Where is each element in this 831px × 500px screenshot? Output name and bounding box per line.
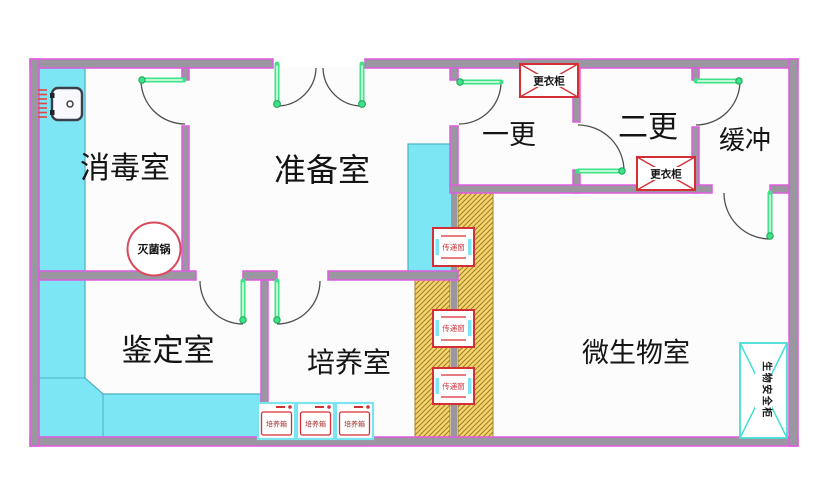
transfer-window-3: 传递窗 [433, 368, 474, 404]
room-label-first-change: 一更 [482, 120, 536, 151]
door-hinge [274, 317, 280, 323]
locker-2: 更衣柜 [637, 157, 695, 190]
room-label-preparation: 准备室 [274, 151, 370, 189]
transfer-window-label: 传递窗 [442, 242, 465, 252]
wall-segment [450, 68, 458, 80]
transfer-window-1: 传递窗 [433, 228, 474, 266]
incubator-3: 培养箱 [336, 403, 373, 439]
wall-segment [30, 59, 39, 446]
locker-label: 更衣柜 [650, 168, 682, 181]
door-hinge [359, 101, 366, 108]
room-label-identification: 鉴定室 [122, 333, 215, 369]
room-label-culture: 培养室 [307, 346, 391, 379]
door-hinge [767, 233, 773, 239]
transfer-window-label: 传递窗 [442, 323, 465, 333]
wall-segment [450, 126, 458, 186]
wall-segment [243, 271, 277, 280]
wall-segment [365, 59, 798, 68]
transfer-window-2: 传递窗 [433, 310, 474, 347]
door-hinge [736, 78, 742, 84]
door-hinge [619, 168, 625, 174]
incubator-2: 培养箱 [297, 403, 334, 439]
wall-segment [328, 271, 458, 280]
wall-segment [30, 59, 273, 68]
incubator-label: 培养箱 [344, 420, 365, 429]
door-hinge [240, 317, 246, 323]
room-label-buffer: 缓冲 [719, 126, 771, 156]
wall-segment [39, 271, 196, 280]
biosafety-cabinet: 生物安全柜 [740, 343, 787, 438]
locker-1: 更衣柜 [520, 64, 578, 97]
transfer-window-label: 传递窗 [442, 381, 465, 391]
wall-segment [770, 185, 789, 193]
lab-floor-plan: 灭菌锅 更衣柜 更衣柜 传递窗 传递窗 传递窗 [0, 0, 831, 500]
incubator-label: 培养箱 [266, 420, 287, 429]
room-label-microbiology: 微生物室 [582, 338, 690, 369]
door-hinge [139, 77, 145, 83]
wall-segment [789, 59, 798, 446]
wall-segment [692, 68, 699, 80]
wall-segment [182, 126, 189, 272]
wall-segment [30, 437, 798, 446]
biosafety-cabinet-label: 生物安全柜 [761, 361, 774, 419]
room-label-second-change: 二更 [618, 110, 678, 145]
door-hinge [457, 79, 463, 85]
hatched-strip-west [415, 280, 450, 437]
sterilizer: 灭菌锅 [128, 223, 181, 276]
sterilizer-label: 灭菌锅 [137, 242, 171, 256]
door-hinge [274, 101, 281, 108]
floor-plan-drawing: 灭菌锅 更衣柜 更衣柜 传递窗 传递窗 传递窗 [0, 0, 831, 500]
incubator-1: 培养箱 [258, 403, 295, 439]
incubator-label: 培养箱 [305, 420, 326, 429]
locker-label: 更衣柜 [533, 75, 565, 88]
room-label-disinfection: 消毒室 [80, 151, 170, 186]
